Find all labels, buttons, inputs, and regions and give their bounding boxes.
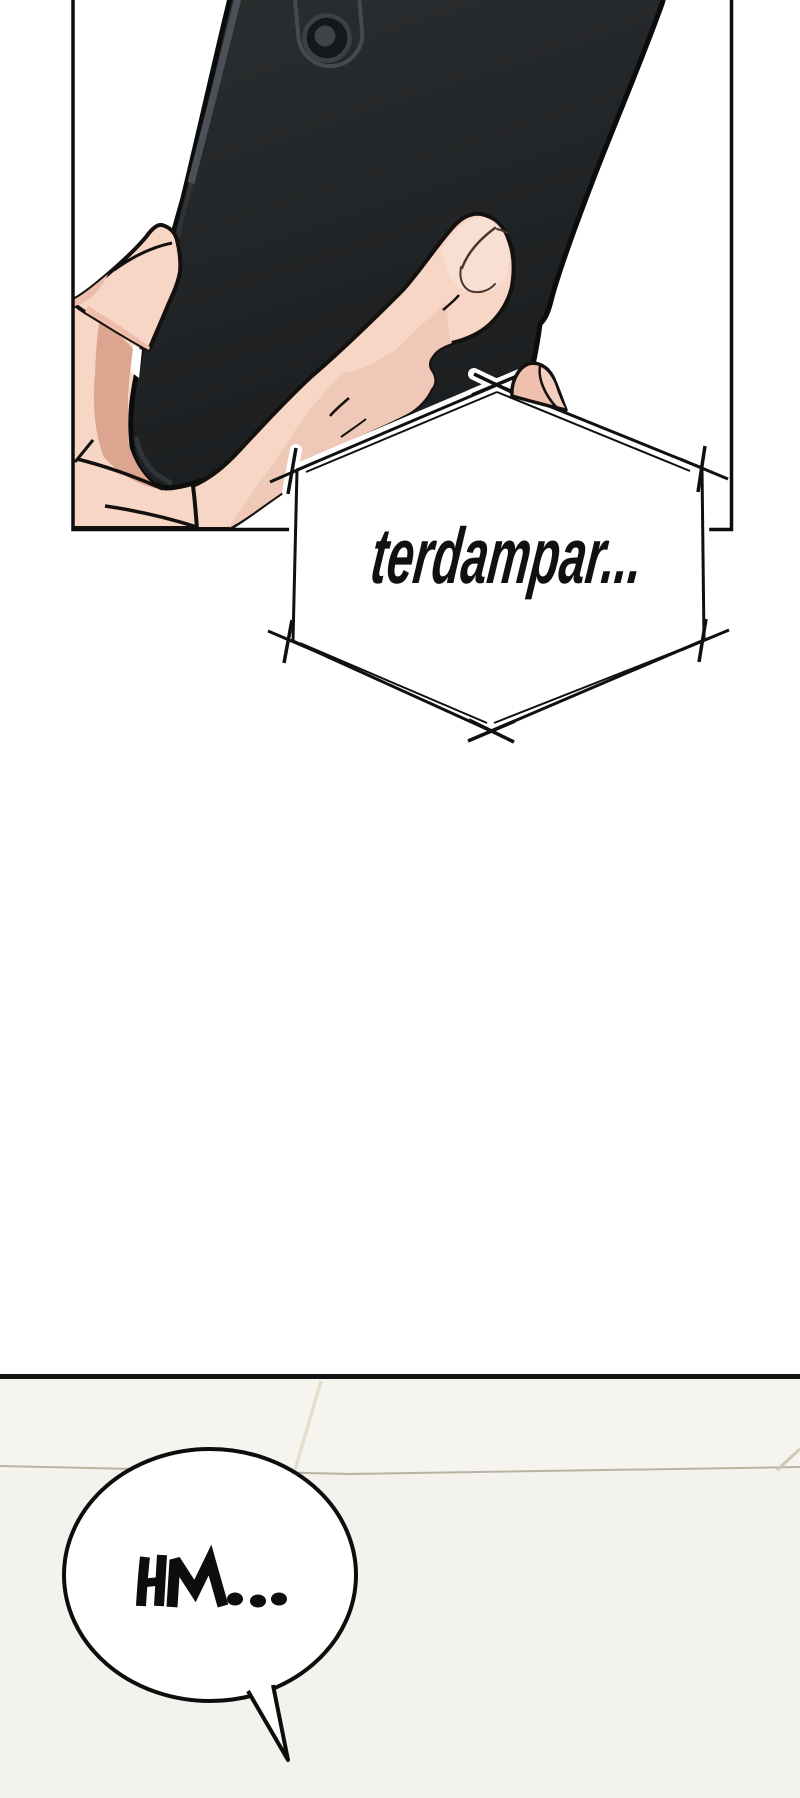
svg-text:terdampar...: terdampar... (367, 512, 648, 600)
